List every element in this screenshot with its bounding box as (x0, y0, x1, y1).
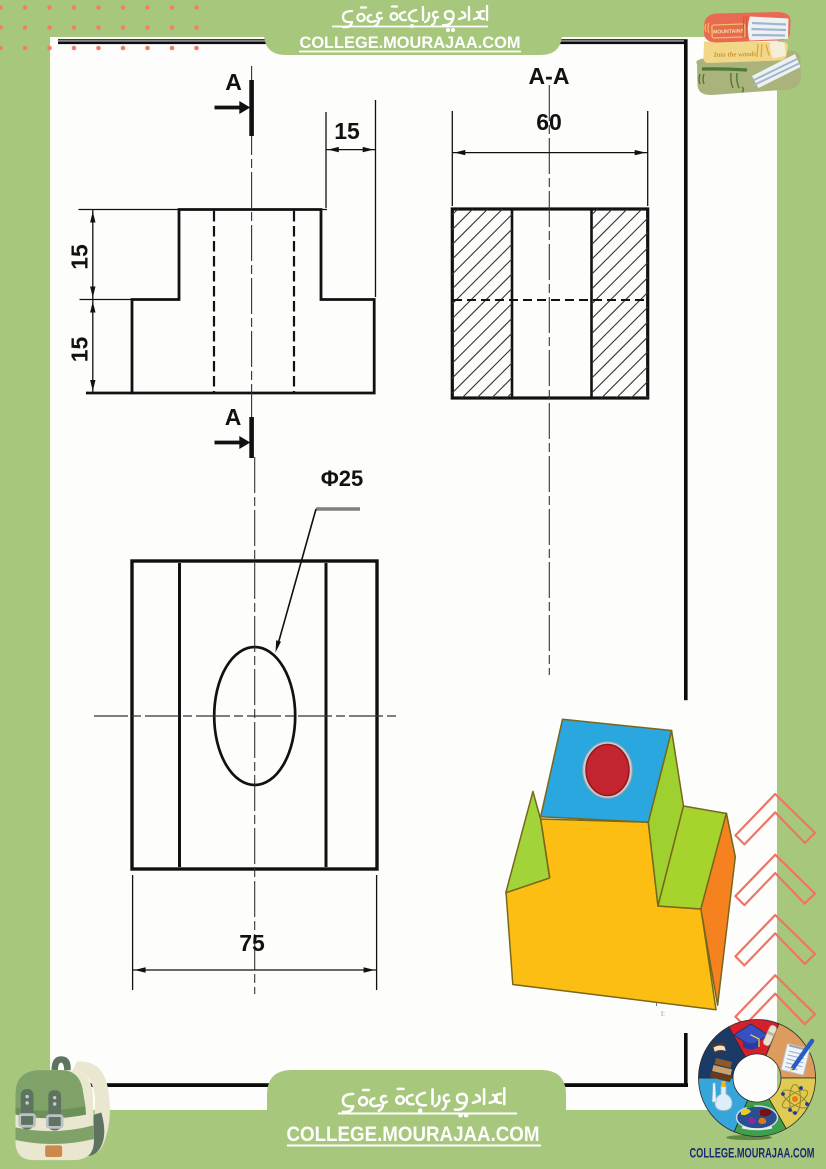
svg-text:COLLEGE.MOURAJAA.COM: COLLEGE.MOURAJAA.COM (287, 1123, 540, 1146)
svg-text:Φ25: Φ25 (321, 466, 364, 491)
svg-text:I:: I: (661, 1011, 665, 1018)
svg-text:15: 15 (334, 118, 360, 144)
svg-text:15: 15 (67, 337, 93, 363)
svg-text:A-A: A-A (529, 63, 570, 89)
svg-text:A: A (225, 69, 242, 95)
svg-text:75: 75 (239, 930, 265, 956)
svg-text:60: 60 (536, 109, 562, 135)
svg-text:COLLEGE.MOURAJAA.COM: COLLEGE.MOURAJAA.COM (690, 1145, 815, 1161)
svg-text:15: 15 (67, 244, 93, 270)
svg-text:COLLEGE.MOURAJAA.COM: COLLEGE.MOURAJAA.COM (300, 33, 521, 52)
svg-text:MOUNTAINS: MOUNTAINS (713, 28, 745, 35)
svg-text:Into the woods: Into the woods (713, 50, 757, 59)
svg-text:A: A (225, 404, 242, 430)
